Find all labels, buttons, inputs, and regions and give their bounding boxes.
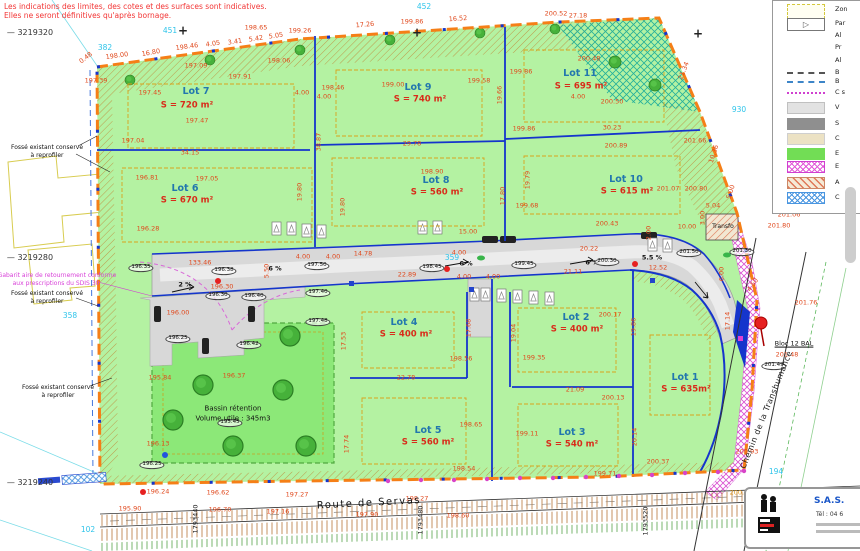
- hydrant-icon: [632, 261, 638, 267]
- title-block: S.A.S. Tél : 04 6: [744, 487, 860, 549]
- legend-label: S: [835, 119, 839, 127]
- bal-icon: [738, 336, 743, 341]
- legend-label: E: [835, 162, 839, 170]
- culvert-icon: [38, 472, 106, 486]
- disclaimer: Les indications des limites, des cotes e…: [4, 2, 267, 21]
- site-plan-document: 0.48198.0016.80198.464.053.415.425.05198…: [0, 0, 860, 551]
- legend-label: C: [835, 193, 840, 201]
- disclaimer-line2: Elles ne seront définitives qu'après bor…: [4, 11, 267, 20]
- legend-label: E: [835, 149, 839, 157]
- legend-label: Par: [835, 19, 845, 27]
- legend-swatch-mline: [787, 92, 825, 94]
- legend-swatch-vgray: [787, 102, 825, 114]
- legend-swatch-xblue: [787, 192, 825, 204]
- legend-label: C s: [835, 88, 845, 96]
- surveyor-logo-icon: [746, 489, 806, 543]
- hydrant-icon: [444, 266, 450, 272]
- legend-swatch-sgray: [787, 118, 825, 130]
- legend-swatch-hred: [787, 177, 825, 189]
- plan-graphics: [0, 0, 860, 551]
- legend-panel: ZonParAlPrAlBBC sVSCEEAC: [772, 0, 860, 214]
- legend-label: C: [835, 134, 840, 142]
- legend-swatch-green: [787, 148, 825, 160]
- legend-item: V: [773, 101, 860, 117]
- legend-swatch-xmag: [787, 161, 825, 173]
- legend-label: A: [835, 178, 839, 186]
- legend-label: Al: [835, 56, 841, 64]
- legend-label: Zon: [835, 5, 848, 13]
- legend-label: Al: [835, 31, 841, 39]
- scrollbar-thumb[interactable]: [845, 187, 856, 263]
- hydrant-icon: [140, 489, 146, 495]
- legend-item: C: [773, 132, 860, 148]
- transfo-box: [706, 214, 738, 240]
- company-name: S.A.S.: [814, 496, 844, 506]
- legend-label: B: [835, 77, 839, 85]
- legend-item: S: [773, 117, 860, 133]
- outlet-icon: [162, 452, 168, 458]
- legend-swatch-gline: [787, 72, 825, 74]
- legend-item: E: [773, 160, 860, 176]
- legend-item: C s: [773, 86, 860, 102]
- legend-swatch-bline: [787, 81, 825, 83]
- legend-swatch-beige: [787, 133, 825, 145]
- pin-icon: [755, 317, 767, 329]
- hydrant-icon: [215, 278, 221, 284]
- legend-label: V: [835, 103, 839, 111]
- legend-label: Pr: [835, 43, 841, 51]
- disclaimer-line1: Les indications des limites, des cotes e…: [4, 2, 267, 11]
- company-phone: Tél : 04 6: [816, 511, 843, 518]
